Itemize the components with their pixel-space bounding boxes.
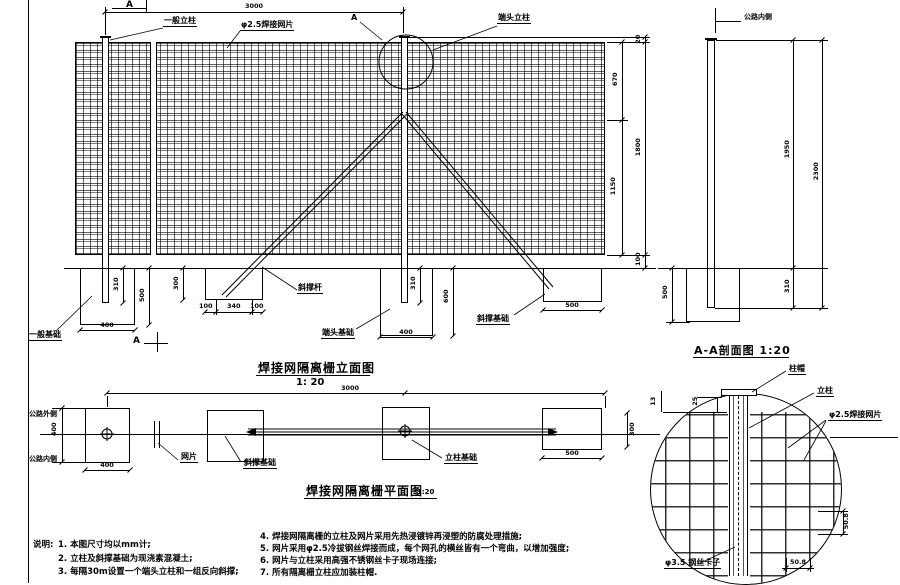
- dim-plan-f4: 500: [552, 450, 592, 457]
- dim-f4-width: 500: [552, 302, 592, 309]
- dim-line: [782, 568, 814, 569]
- section-marker-a-bottom: A: [133, 336, 140, 347]
- label-cap: 柱帽: [788, 364, 806, 375]
- dim-f1-embed: 310: [113, 267, 120, 301]
- dim-line: [62, 408, 63, 462]
- dim-1800: 1800: [635, 130, 642, 164]
- dim-chain-inner: [622, 42, 623, 255]
- drawing-sheet: { "elevation": { "title": "焊接网隔离栅立面图", "…: [0, 0, 900, 583]
- plan-mesh-joint: [159, 421, 160, 448]
- dim-1150: 1150: [610, 169, 617, 203]
- end-post: [401, 37, 408, 303]
- dim-line: [85, 470, 130, 471]
- dim-line-span: [105, 12, 403, 13]
- dim-f3-width: 400: [386, 329, 426, 336]
- label-plan-mesh: 网片: [180, 452, 198, 463]
- dim-f3-embed: 310: [410, 266, 417, 300]
- dim-ext: [607, 42, 650, 43]
- plan-foundation-2: [207, 410, 264, 462]
- dim-line: [149, 268, 150, 325]
- section-foundation: [686, 268, 740, 322]
- dim-ext: [715, 308, 828, 309]
- dim-f1-width: 400: [87, 322, 127, 329]
- dim-25: 25: [692, 384, 699, 418]
- detail-post-inner-line: [743, 396, 744, 576]
- dim-chain-b: [822, 40, 823, 308]
- dim-ext: [52, 408, 85, 409]
- detail-step-line: [697, 397, 722, 398]
- dim-f2-depth: 300: [173, 266, 180, 300]
- dim-13: 13: [650, 384, 657, 418]
- detail-post-inner-line: [733, 396, 734, 576]
- label-brace-foundation: 斜撑基础: [476, 314, 510, 325]
- plan-foundation-1: [85, 408, 130, 463]
- dim-line: [183, 268, 184, 300]
- dim-f3-depth: 600: [443, 279, 450, 313]
- detail-post-edge: [729, 396, 730, 576]
- dim-line: [123, 268, 124, 303]
- dim-line: [672, 268, 673, 322]
- dim-ext: [410, 37, 650, 38]
- dim-ext: [716, 40, 828, 41]
- general-post: [102, 37, 109, 303]
- sheet-border-left: [28, 0, 29, 583]
- road-side-leader-h: [715, 21, 741, 22]
- label-wire-clip: φ3.5 钢丝卡子: [664, 558, 721, 569]
- dim-plan-width: 400: [51, 412, 58, 446]
- elevation-scale: 1: 20: [296, 377, 324, 389]
- dim-line: [380, 337, 433, 338]
- section-cut-tick-bottom: [157, 332, 158, 352]
- label-end-post: 端头立柱: [497, 13, 531, 24]
- plan-foundation-3: [382, 407, 430, 460]
- dim-above-ground: 1950: [784, 132, 791, 166]
- plan-scale: 1:20: [417, 488, 434, 496]
- notes-heading: 说明:: [33, 540, 53, 550]
- foundation-general: [80, 268, 135, 325]
- dim-ext: [52, 462, 85, 463]
- dim-plan-f4h: 300: [629, 412, 636, 446]
- dim-f2-c: 100: [250, 303, 264, 310]
- label-end-foundation: 端头基础: [321, 328, 355, 339]
- dim-ext: [666, 322, 690, 323]
- detail-post-edge: [747, 396, 748, 576]
- section-cut-line-bottom: [144, 343, 168, 344]
- detail-circle: [650, 393, 842, 585]
- elevation-title-underline: [256, 375, 370, 376]
- dim-line: [453, 268, 454, 336]
- detail-post-center-line: [738, 396, 739, 576]
- label-general-post: 一般立柱: [163, 16, 197, 27]
- dim-f2-b: 340: [227, 303, 241, 310]
- dim-spacing-right: 50.8: [843, 504, 850, 538]
- note-2: 2. 立柱及斜撑基础为现浇素混凝土;: [58, 554, 193, 564]
- note-7: 7. 所有隔离栅立柱应加装柱帽.: [260, 568, 377, 578]
- dim-ext: [607, 120, 628, 121]
- label-road-inner: 公路内侧: [744, 13, 772, 21]
- section-title: A-A剖面图 1:20: [694, 342, 791, 358]
- dim-ext: [216, 300, 217, 315]
- dim-ext: [605, 396, 606, 408]
- elevation-title: 焊接网隔离栅立面图: [258, 359, 375, 376]
- dim-total: 2300: [813, 154, 820, 188]
- plan-title-underline: [304, 498, 437, 499]
- dim-line-plan-span: [107, 393, 605, 394]
- dim-ext: [607, 255, 650, 256]
- label-mesh: φ2.5焊接网片: [240, 20, 294, 31]
- dim-line: [80, 330, 135, 331]
- dim-plan-f1: 400: [87, 462, 127, 469]
- note-3: 3. 每隔30m设置一个端头立柱和一组反向斜撑;: [58, 567, 239, 577]
- foundation-end: [380, 268, 433, 336]
- note-5: 5. 网片采用φ2.5冷拔钢丝焊接而成，每个网孔的横丝皆有一个弯曲，以增加强度;: [260, 544, 569, 554]
- dim-ext: [810, 558, 811, 572]
- dim-ext: [105, 7, 106, 35]
- dim-section-fdn: 500: [662, 275, 669, 309]
- dim-chain-a: [793, 40, 794, 308]
- dim-ext: [107, 396, 108, 407]
- dim-ext: [403, 7, 404, 33]
- section-title-underline: [693, 357, 789, 358]
- label-post: 立柱: [816, 386, 834, 397]
- dim-f1-depth: 500: [139, 278, 146, 312]
- dim-embed: 310: [784, 269, 791, 303]
- dim-spacing-bottom: 50.8: [790, 559, 806, 566]
- label-plan-post-foundation: 立柱基础: [444, 453, 478, 464]
- dim-ext: [786, 558, 787, 572]
- plan-mesh-joint: [154, 421, 155, 448]
- plan-foundation-4: [542, 408, 602, 450]
- dim-line: [542, 458, 602, 459]
- dim-ext: [773, 268, 828, 269]
- detail-post-cap: [721, 389, 757, 396]
- dim-line: [543, 310, 602, 311]
- label-detail-mesh: φ2.5焊接网片: [828, 410, 882, 421]
- note-6: 6. 网片与立柱采用高强不锈钢丝卡子现场连接;: [260, 556, 437, 566]
- dim-f2-a: 100: [199, 303, 213, 310]
- note-4: 4. 焊接网隔离栅的立柱及网片采用先热浸镀锌再浸塑的防腐处理措施;: [260, 532, 522, 542]
- foundation-brace-right: [543, 268, 602, 302]
- label-plan-brace-foundation: 斜撑基础: [243, 458, 277, 469]
- label-general-foundation: 一般基础: [28, 330, 62, 341]
- section-marker-a-top: A: [126, 0, 133, 11]
- dim-line: [205, 312, 263, 313]
- foundation-brace-left: [205, 268, 263, 300]
- dim-plan-span: 3000: [330, 385, 370, 392]
- dim-line: [420, 268, 421, 303]
- section-cut-tick-top: [146, 0, 147, 12]
- dim-span: 3000: [234, 3, 274, 10]
- dim-chain-outer: [645, 37, 646, 268]
- detail-ext-line: [830, 437, 898, 438]
- detail-callout-a: A: [351, 13, 357, 23]
- dim-670: 670: [612, 62, 619, 96]
- note-1: 1. 本图尺寸均以mm计;: [58, 540, 151, 550]
- dim-line: [661, 391, 662, 412]
- plan-title: 焊接网隔离栅平面图: [306, 482, 423, 499]
- dim-20: 20: [635, 22, 642, 56]
- label-brace: 斜撑杆: [297, 283, 323, 294]
- dim-100: 100: [635, 242, 642, 276]
- mesh-panel-seam: [150, 42, 157, 255]
- detail-step-line: [717, 397, 718, 413]
